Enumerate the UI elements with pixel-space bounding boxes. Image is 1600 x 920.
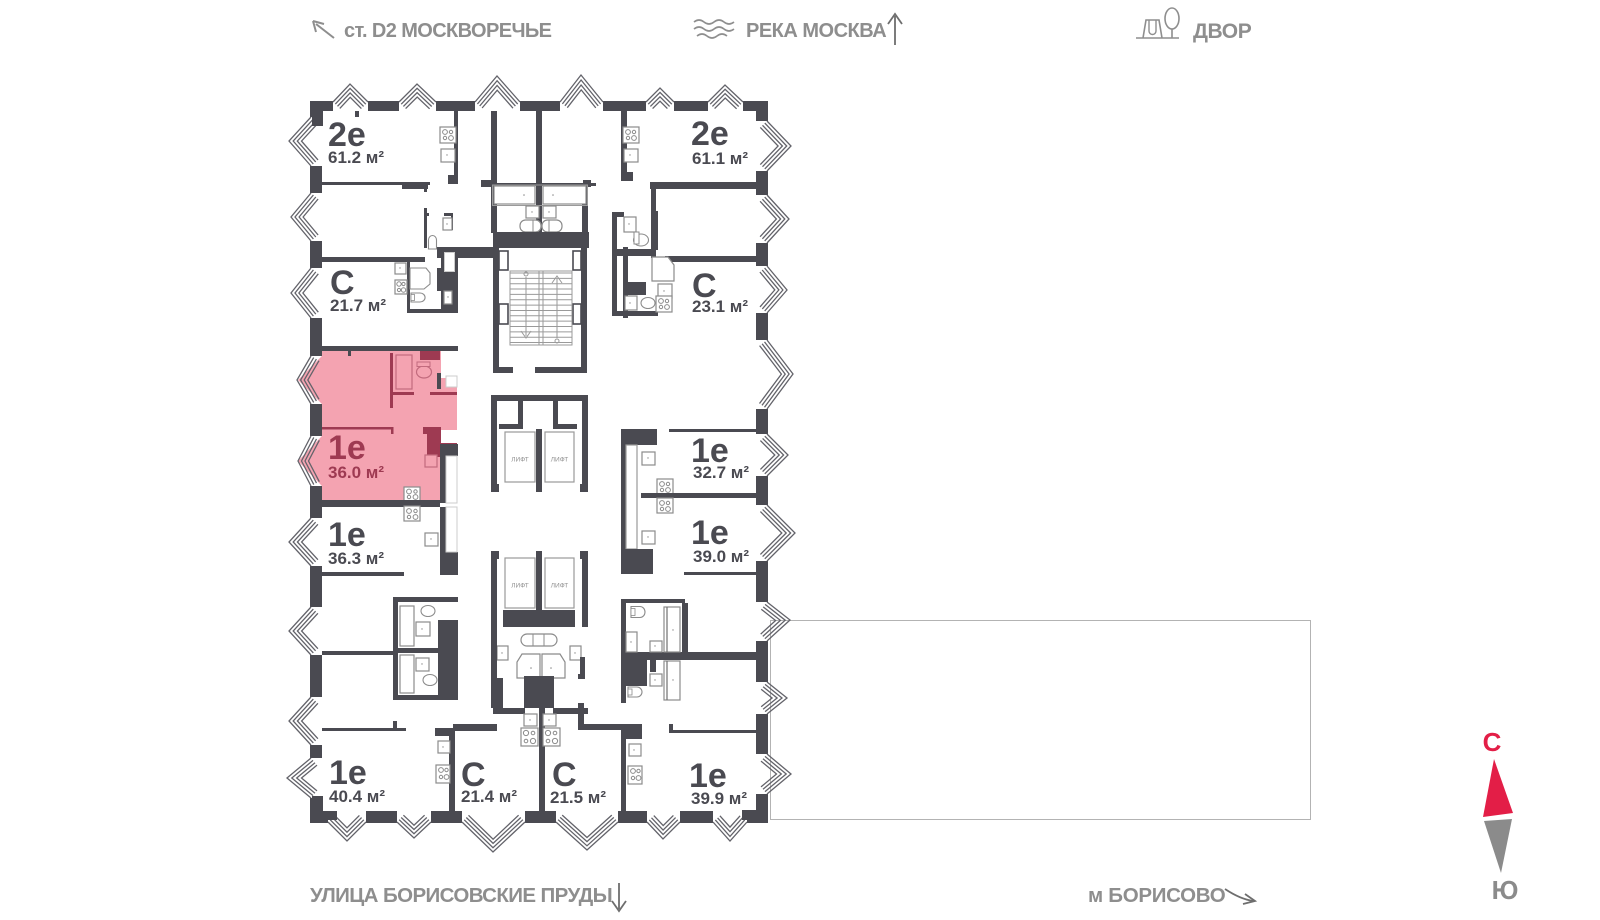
svg-text:40.4 м²: 40.4 м² bbox=[329, 787, 385, 806]
svg-text:ЛИФТ: ЛИФТ bbox=[511, 583, 529, 590]
svg-text:36.0 м²: 36.0 м² bbox=[328, 463, 384, 482]
svg-text:21.4 м²: 21.4 м² bbox=[461, 787, 517, 806]
svg-text:ст. D2 МОСКВОРЕЧЬЕ: ст. D2 МОСКВОРЕЧЬЕ bbox=[344, 20, 552, 42]
svg-text:61.1 м²: 61.1 м² bbox=[692, 149, 748, 168]
svg-text:ЛИФТ: ЛИФТ bbox=[511, 457, 529, 464]
svg-text:Ю: Ю bbox=[1492, 875, 1519, 905]
svg-text:ЛИФТ: ЛИФТ bbox=[551, 583, 569, 590]
svg-text:21.7 м²: 21.7 м² bbox=[330, 296, 386, 315]
svg-text:23.1 м²: 23.1 м² bbox=[692, 297, 748, 316]
svg-text:м БОРИСОВО: м БОРИСОВО bbox=[1088, 884, 1226, 907]
svg-text:ДВОР: ДВОР bbox=[1193, 20, 1252, 43]
svg-text:39.0 м²: 39.0 м² bbox=[693, 547, 749, 566]
svg-text:36.3 м²: 36.3 м² bbox=[328, 549, 384, 568]
svg-text:УЛИЦА БОРИСОВСКИЕ ПРУДЫ: УЛИЦА БОРИСОВСКИЕ ПРУДЫ bbox=[310, 884, 612, 907]
svg-text:39.9 м²: 39.9 м² bbox=[691, 789, 747, 808]
svg-text:21.5 м²: 21.5 м² bbox=[550, 788, 606, 807]
svg-text:С: С bbox=[1483, 727, 1502, 757]
svg-text:2е: 2е bbox=[691, 115, 729, 153]
svg-text:1е: 1е bbox=[328, 429, 366, 467]
svg-text:32.7 м²: 32.7 м² bbox=[693, 463, 749, 482]
svg-text:ЛИФТ: ЛИФТ bbox=[551, 457, 569, 464]
svg-text:61.2 м²: 61.2 м² bbox=[328, 148, 384, 167]
svg-text:РЕКА МОСКВА: РЕКА МОСКВА bbox=[746, 20, 886, 42]
